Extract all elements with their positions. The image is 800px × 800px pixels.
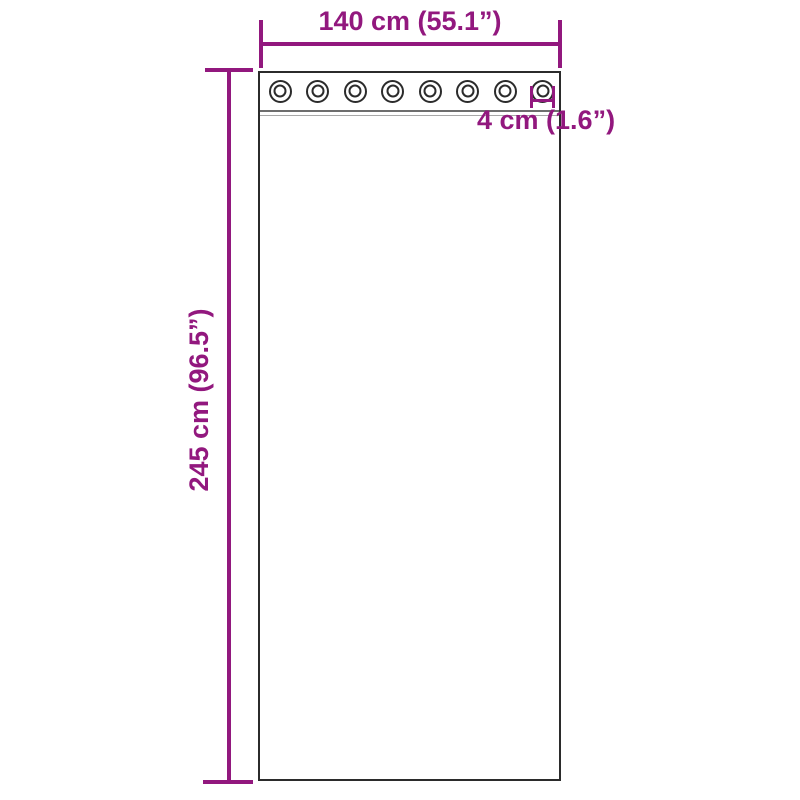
grommet	[494, 80, 517, 103]
grommet-inner-ring	[461, 85, 474, 98]
width-dimension-label: 140 cm (55.1”)	[258, 7, 562, 35]
grommet	[344, 80, 367, 103]
grommet	[419, 80, 442, 103]
grommet-inner-ring	[386, 85, 399, 98]
height-dimension-line	[227, 69, 231, 783]
grommet	[306, 80, 329, 103]
curtain-panel	[258, 71, 561, 781]
grommet-inner-ring	[274, 85, 287, 98]
grommet	[456, 80, 479, 103]
dimension-diagram: 140 cm (55.1”) 245 cm (96.5”) 4 cm (1.6”…	[0, 0, 800, 800]
height-dimension-tick-top	[205, 68, 254, 72]
grommet-inner-ring	[499, 85, 512, 98]
height-dimension-label: 245 cm (96.5”)	[185, 308, 213, 491]
grommet	[381, 80, 404, 103]
width-dimension-tick-right	[558, 20, 562, 68]
grommet-inner-ring	[424, 85, 437, 98]
grommet-inner-ring	[349, 85, 362, 98]
height-dimension-tick-bottom	[203, 780, 253, 784]
grommet	[269, 80, 292, 103]
grommet-dimension-bar	[530, 99, 556, 103]
width-dimension-tick-left	[259, 20, 263, 68]
grommet-inner-ring	[311, 85, 324, 98]
grommet-inner-ring	[536, 85, 549, 98]
width-dimension-line	[259, 42, 563, 46]
grommet-dimension-label: 4 cm (1.6”)	[477, 106, 615, 134]
